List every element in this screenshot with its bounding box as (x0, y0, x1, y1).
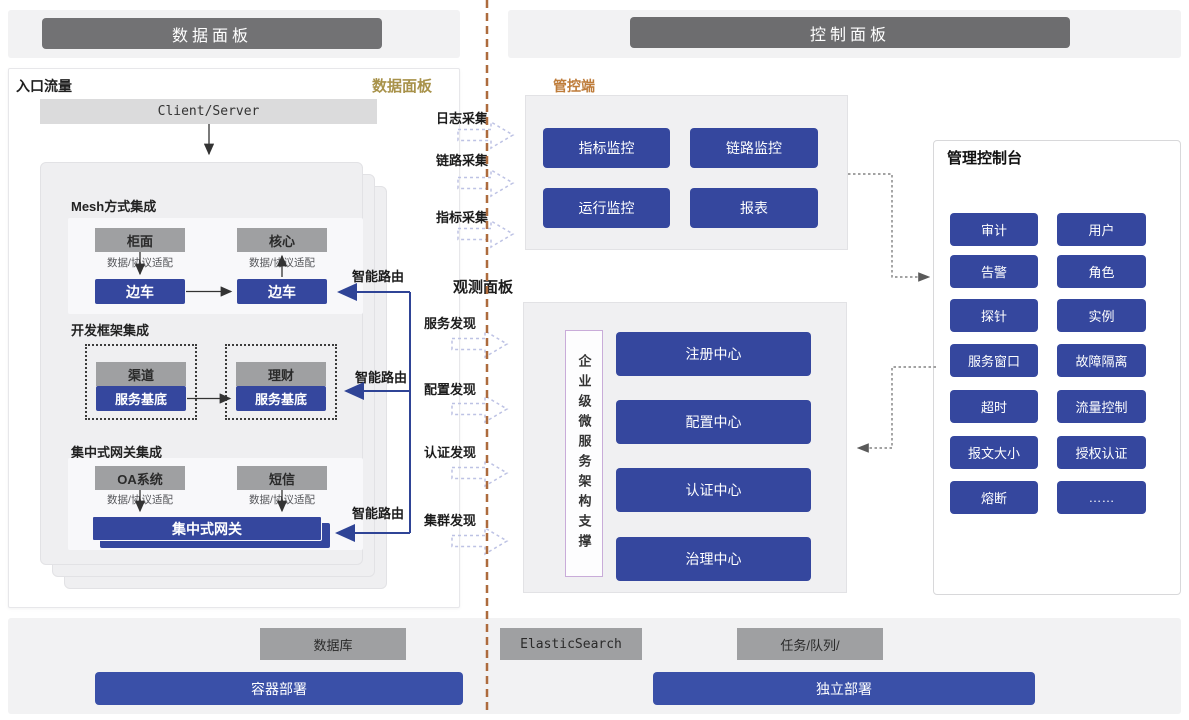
monitor-btn-metrics: 指标监控 (543, 128, 670, 168)
gateway-adapter-right: 数据/协议适配 (235, 492, 329, 507)
mesh-adapter-left: 数据/协议适配 (93, 255, 187, 270)
mesh-node-counter: 柜面 (95, 228, 185, 252)
gateway-adapter-left: 数据/协议适配 (93, 492, 187, 507)
support-vertical-label: 企业级微服务架构支撑 (575, 354, 594, 554)
center-config: 配置中心 (616, 400, 811, 444)
console-btn-user: 用户 (1057, 213, 1146, 246)
manage-side-label: 管控端 (553, 76, 595, 96)
framework-section-title: 开发框架集成 (71, 320, 149, 339)
data-panel-corner-label: 数据面板 (372, 75, 432, 96)
mesh-section-title: Mesh方式集成 (71, 196, 156, 215)
collect-label-trace: 链路采集 (436, 150, 488, 169)
collect-label-metric: 指标采集 (436, 207, 488, 226)
discover-label-config: 配置发现 (424, 379, 476, 398)
monitor-btn-trace: 链路监控 (690, 128, 818, 168)
console-btn-more: …… (1057, 481, 1146, 514)
console-btn-instance: 实例 (1057, 299, 1146, 332)
mesh-adapter-right: 数据/协议适配 (235, 255, 329, 270)
gateway-node-sms: 短信 (237, 466, 327, 490)
gateway-node-oa: OA系统 (95, 466, 185, 490)
framework-base-left: 服务基底 (96, 386, 186, 411)
dashed-block-arrows (452, 122, 513, 554)
console-btn-flowctrl: 流量控制 (1057, 390, 1146, 423)
console-btn-probe: 探针 (950, 299, 1038, 332)
discover-label-auth: 认证发现 (424, 442, 476, 461)
smart-route-label-3: 智能路由 (352, 503, 404, 522)
gateway-bus: 集中式网关 (92, 516, 322, 541)
mesh-sidecar-right: 边车 (237, 279, 327, 304)
smart-route-label-1: 智能路由 (352, 266, 404, 285)
footer-task-queue: 任务/队列/ (737, 628, 883, 660)
console-btn-timeout: 超时 (950, 390, 1038, 423)
architecture-diagram: 数据面板 控制面板 入口流量 数据面板 Client/Server Mesh方式… (0, 0, 1189, 720)
framework-node-wealth: 理财 (236, 362, 326, 386)
client-server-node: Client/Server (40, 99, 377, 124)
monitor-btn-runtime: 运行监控 (543, 188, 670, 228)
console-btn-role: 角色 (1057, 255, 1146, 288)
center-registry: 注册中心 (616, 332, 811, 376)
monitor-btn-report: 报表 (690, 188, 818, 228)
entry-traffic-label: 入口流量 (16, 76, 72, 96)
footer-standalone-deploy: 独立部署 (653, 672, 1035, 705)
center-auth: 认证中心 (616, 468, 811, 512)
collect-label-log: 日志采集 (436, 108, 488, 127)
footer-database: 数据库 (260, 628, 406, 660)
discover-label-cluster: 集群发现 (424, 510, 476, 529)
observe-panel-title: 观测面板 (453, 276, 513, 297)
footer-container-deploy: 容器部署 (95, 672, 463, 705)
management-console-title: 管理控制台 (947, 147, 1022, 168)
control-plane-header: 控制面板 (630, 17, 1070, 48)
framework-base-right: 服务基底 (236, 386, 326, 411)
framework-node-channel: 渠道 (96, 362, 186, 386)
console-btn-msgsize: 报文大小 (950, 436, 1038, 469)
dotted-connectors (848, 174, 936, 448)
center-governance: 治理中心 (616, 537, 811, 581)
console-btn-fuse: 熔断 (950, 481, 1038, 514)
mesh-sidecar-left: 边车 (95, 279, 185, 304)
console-btn-authz: 授权认证 (1057, 436, 1146, 469)
console-btn-isolation: 故障隔离 (1057, 344, 1146, 377)
console-btn-alert: 告警 (950, 255, 1038, 288)
console-btn-audit: 审计 (950, 213, 1038, 246)
discover-label-service: 服务发现 (424, 313, 476, 332)
mesh-node-core: 核心 (237, 228, 327, 252)
console-btn-window: 服务窗口 (950, 344, 1038, 377)
smart-route-label-2: 智能路由 (355, 367, 407, 386)
support-vertical-box: 企业级微服务架构支撑 (565, 330, 603, 577)
data-plane-header: 数据面板 (42, 18, 382, 49)
footer-elasticsearch: ElasticSearch (500, 628, 642, 660)
